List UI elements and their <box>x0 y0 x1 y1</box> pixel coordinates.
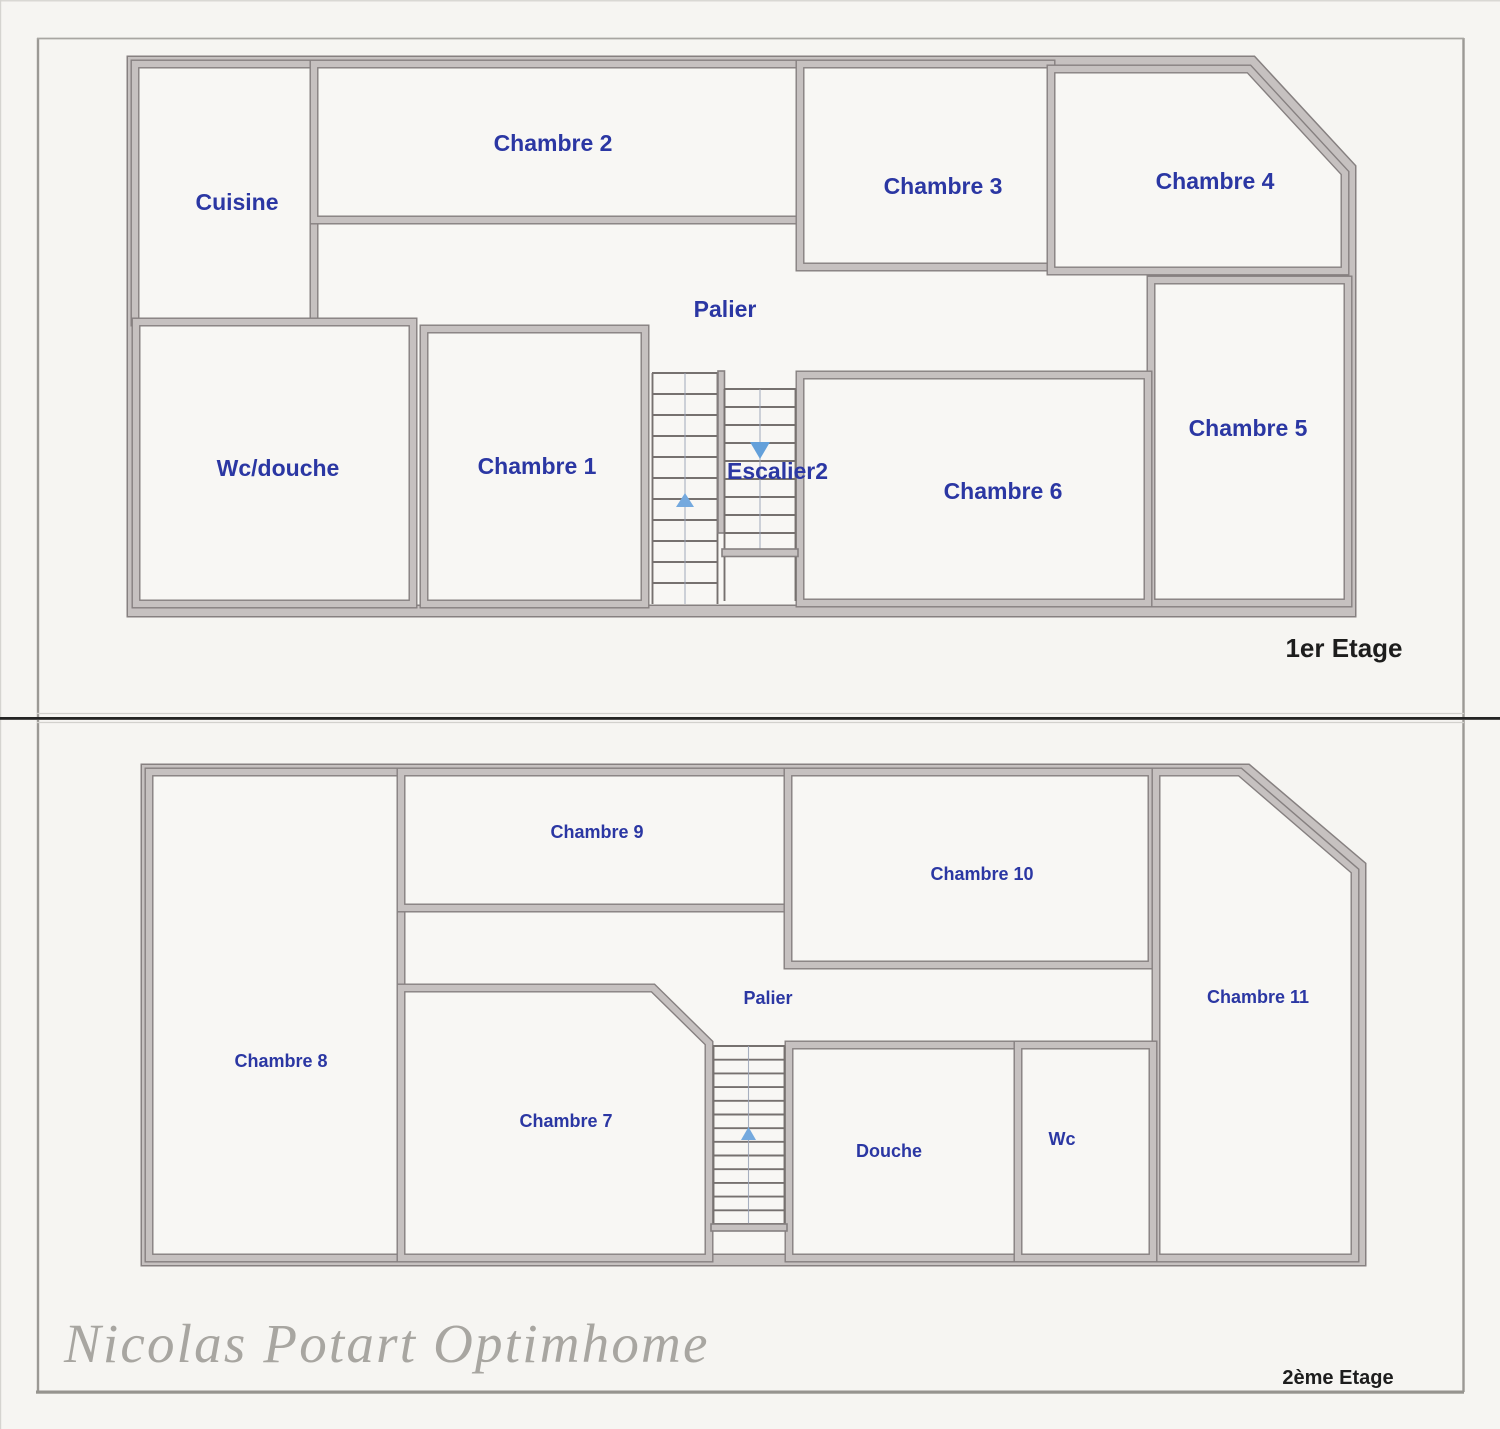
svg-text:Palier: Palier <box>694 296 757 322</box>
svg-text:Palier: Palier <box>743 988 792 1008</box>
svg-text:2ème Etage: 2ème Etage <box>1282 1367 1393 1389</box>
svg-text:Chambre 7: Chambre 7 <box>519 1111 612 1131</box>
svg-text:Douche: Douche <box>856 1141 922 1161</box>
svg-text:Chambre 11: Chambre 11 <box>1207 987 1309 1007</box>
svg-text:Chambre 4: Chambre 4 <box>1156 168 1275 194</box>
svg-text:Chambre 5: Chambre 5 <box>1189 415 1308 441</box>
svg-text:Wc/douche: Wc/douche <box>217 455 340 481</box>
svg-text:1er Etage: 1er Etage <box>1285 633 1402 663</box>
svg-text:Chambre 8: Chambre 8 <box>234 1051 327 1071</box>
svg-text:Chambre 1: Chambre 1 <box>478 453 597 479</box>
svg-text:Wc: Wc <box>1049 1129 1076 1149</box>
svg-text:Chambre 2: Chambre 2 <box>494 130 613 156</box>
svg-text:Nicolas Potart Optimhome: Nicolas Potart Optimhome <box>63 1313 710 1374</box>
svg-text:Chambre 9: Chambre 9 <box>550 822 643 842</box>
svg-text:Chambre 10: Chambre 10 <box>930 864 1033 884</box>
svg-text:Chambre 3: Chambre 3 <box>884 173 1003 199</box>
svg-text:Escalier2: Escalier2 <box>727 458 828 484</box>
svg-text:Cuisine: Cuisine <box>195 189 278 215</box>
svg-text:Chambre 6: Chambre 6 <box>944 478 1063 504</box>
